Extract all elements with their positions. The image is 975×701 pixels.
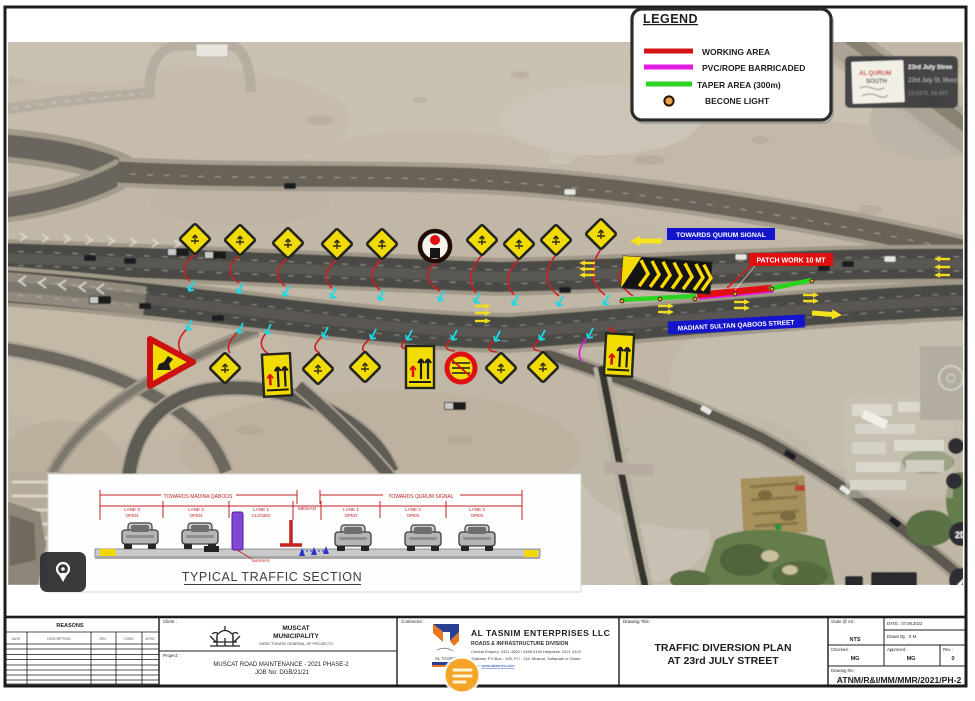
svg-text:WORKING AREA: WORKING AREA xyxy=(702,47,770,57)
svg-text:OPEN: OPEN xyxy=(406,513,419,518)
svg-text:ROADS & INFRASTRUCTURE DIVISIO: ROADS & INFRASTRUCTURE DIVISION xyxy=(471,641,569,647)
svg-text:DATE: DATE xyxy=(12,637,22,641)
svg-text:OPEN: OPEN xyxy=(344,513,357,518)
svg-text:NTS: NTS xyxy=(850,637,861,643)
svg-text:Checked :: Checked : xyxy=(831,647,850,652)
svg-text:Approved :: Approved : xyxy=(887,647,907,652)
svg-text:LANE 1: LANE 1 xyxy=(253,507,269,512)
svg-text:23rd July St, Musc: 23rd July St, Musc xyxy=(908,78,957,84)
svg-text:MUSCAT: MUSCAT xyxy=(282,625,309,632)
svg-text:Scale @ A3 :: Scale @ A3 : xyxy=(831,619,855,624)
svg-text:0: 0 xyxy=(951,656,954,662)
svg-text:OPEN: OPEN xyxy=(189,513,202,518)
svg-text:CLOSED: CLOSED xyxy=(252,513,272,518)
svg-text:PVC/ROPE BARRICADED: PVC/ROPE BARRICADED xyxy=(702,63,805,73)
svg-text:AL QURUM: AL QURUM xyxy=(859,71,891,77)
svg-text:JOB No: DGB/21/21: JOB No: DGB/21/21 xyxy=(255,670,310,676)
svg-text:Rev :: Rev : xyxy=(943,647,953,652)
svg-text:PATCH WORK 10 MT: PATCH WORK 10 MT xyxy=(757,258,827,265)
svg-text:TOWARDS MADINA QABOOS: TOWARDS MADINA QABOOS xyxy=(164,494,234,500)
svg-text:Drawing Title :: Drawing Title : xyxy=(623,619,652,624)
svg-text:LANE 1: LANE 1 xyxy=(343,507,359,512)
svg-text:MG: MG xyxy=(907,656,916,662)
svg-text:MEDIAN: MEDIAN xyxy=(298,506,316,511)
svg-text:TAPER AREA (300m): TAPER AREA (300m) xyxy=(697,80,781,90)
svg-text:DESCRIPTION: DESCRIPTION xyxy=(47,637,71,641)
svg-text:Drawn By : S M: Drawn By : S M xyxy=(887,634,917,639)
svg-text:OPEN: OPEN xyxy=(125,513,138,518)
svg-text:Contractor :: Contractor : xyxy=(401,619,425,624)
svg-text:Project :: Project : xyxy=(163,653,180,658)
svg-text:LEGEND: LEGEND xyxy=(643,12,698,26)
svg-text:LANE 3: LANE 3 xyxy=(124,507,140,512)
svg-text:MUSCAT ROAD MAINTENANCE - 2021: MUSCAT ROAD MAINTENANCE - 2021 PHASE-2 xyxy=(213,662,349,668)
svg-text:TOWARDS QURUM SIGNAL: TOWARDS QURUM SIGNAL xyxy=(388,494,454,500)
svg-text:Address: PO Box : 105, P.C :: Address: PO Box : 105, P.C : 115, Muscat… xyxy=(471,656,580,661)
svg-text:23.5976, 58.437: 23.5976, 58.437 xyxy=(908,91,948,97)
svg-text:DATE : 07.08.2022: DATE : 07.08.2022 xyxy=(887,621,923,626)
svg-text:BECONE LIGHT: BECONE LIGHT xyxy=(705,96,770,106)
svg-text:APVD: APVD xyxy=(145,637,155,641)
svg-text:AL TASNIM ENTERPRISES LLC: AL TASNIM ENTERPRISES LLC xyxy=(471,628,610,638)
svg-text:MG: MG xyxy=(851,656,860,662)
svg-text:REV: REV xyxy=(100,637,108,641)
svg-text:LANE 3: LANE 3 xyxy=(469,507,485,512)
svg-text:ATNM/R&I/MM/MMR/2021/PH-2: ATNM/R&I/MM/MMR/2021/PH-2 xyxy=(837,675,962,685)
svg-text:LANE 2: LANE 2 xyxy=(405,507,421,512)
svg-text:LANE 2: LANE 2 xyxy=(188,507,204,512)
svg-text:REASONS: REASONS xyxy=(56,623,84,629)
svg-text:TOWARDS QURUM SIGNAL: TOWARDS QURUM SIGNAL xyxy=(676,232,766,239)
svg-text:Client :: Client : xyxy=(163,619,177,624)
svg-text:BARRIER: BARRIER xyxy=(252,558,270,563)
svg-text:TRAFFIC DIVERSION PLAN: TRAFFIC DIVERSION PLAN xyxy=(654,642,791,654)
svg-text:Drawing No :: Drawing No : xyxy=(831,668,855,673)
svg-text:MUNICIPALITY: MUNICIPALITY xyxy=(273,633,319,640)
svg-text:TYPICAL TRAFFIC SECTION: TYPICAL TRAFFIC SECTION xyxy=(182,570,363,584)
svg-text:SOUTH: SOUTH xyxy=(866,79,887,85)
svg-text:23rd July Stree: 23rd July Stree xyxy=(908,64,953,71)
svg-text:AT 23rd JULY STREET: AT 23rd JULY STREET xyxy=(667,655,779,667)
svg-text:CHKD: CHKD xyxy=(124,637,134,641)
svg-text:Central Enquiry: 2421 4000 / 2: Central Enquiry: 2421 4000 / 2458 0140 H… xyxy=(471,649,582,654)
svg-text:OPEN: OPEN xyxy=(470,513,483,518)
svg-text:DIRECTORATE GENERAL OF PROJECT: DIRECTORATE GENERAL OF PROJECTS xyxy=(259,642,333,646)
